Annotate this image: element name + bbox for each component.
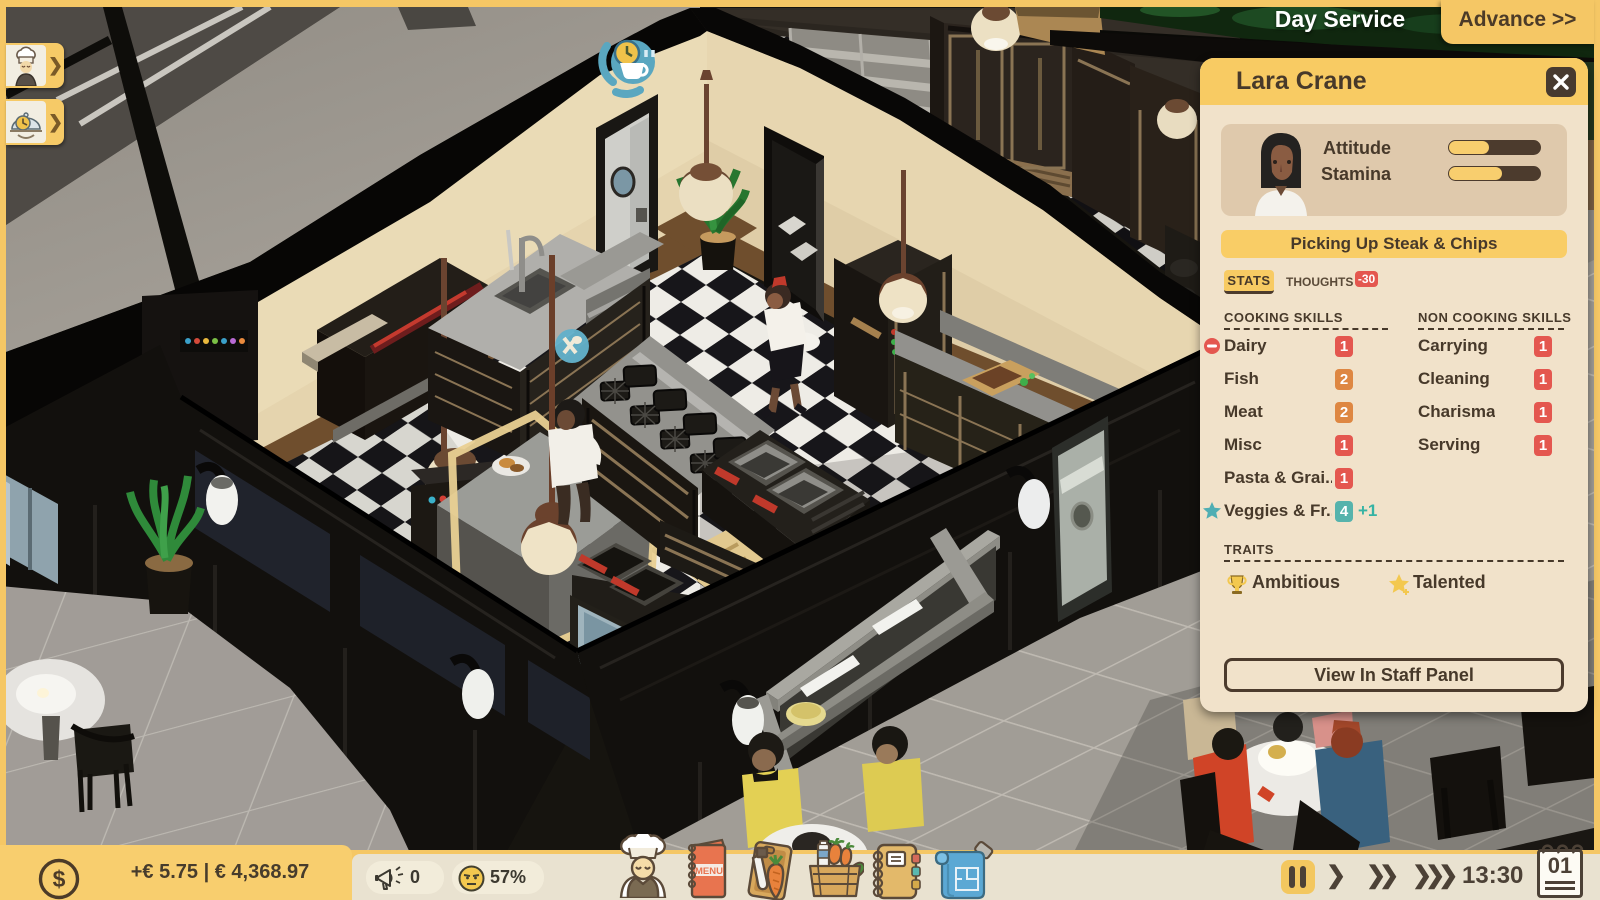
svg-text:MENU: MENU bbox=[695, 866, 723, 877]
svg-text:$: $ bbox=[53, 866, 66, 892]
